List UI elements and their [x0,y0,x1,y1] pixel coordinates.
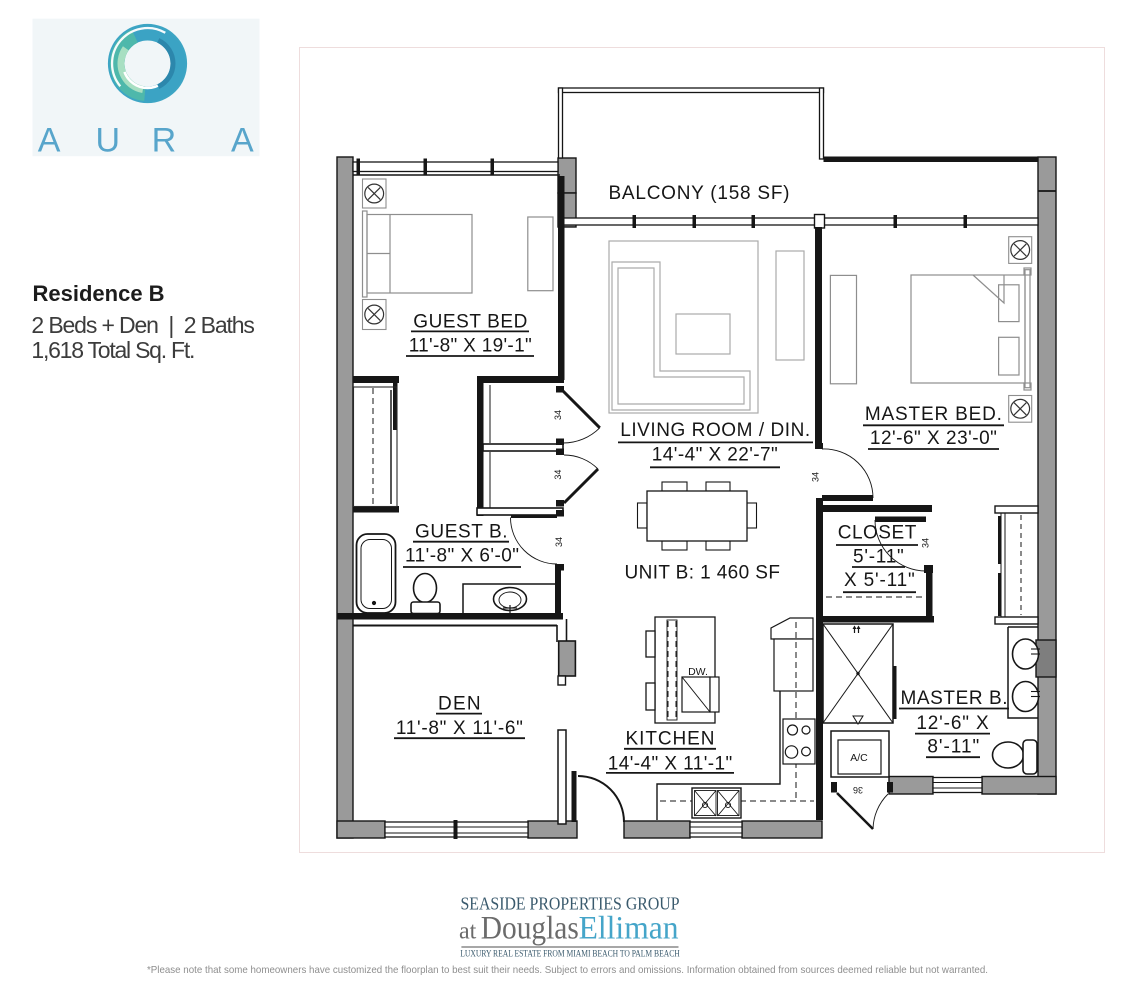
svg-text:BALCONY (158 SF): BALCONY (158 SF) [609,183,790,204]
svg-text:36: 36 [853,785,863,795]
svg-text:Residence B: Residence B [33,281,165,306]
svg-text:14'-4" X 11'-1": 14'-4" X 11'-1" [608,753,733,774]
svg-text:34: 34 [553,470,563,480]
svg-text:34: 34 [554,537,564,547]
svg-text:GUEST B.: GUEST B. [415,522,508,543]
svg-text:34: 34 [921,538,931,548]
svg-text:DW.: DW. [688,666,708,678]
svg-text:X 5'-11": X 5'-11" [844,570,915,591]
svg-text:34: 34 [811,472,821,482]
svg-text:Elliman: Elliman [579,910,679,946]
svg-text:KITCHEN: KITCHEN [626,729,715,750]
svg-text:A: A [38,121,61,159]
svg-text:MASTER BED.: MASTER BED. [865,404,1002,425]
svg-text:2 Beds + Den | 2 Baths: 2 Beds + Den | 2 Baths [31,312,255,338]
svg-text:LUXURY REAL ESTATE FROM MIAMI: LUXURY REAL ESTATE FROM MIAMI BEACH TO P… [460,949,680,960]
svg-text:CLOSET: CLOSET [838,523,917,544]
svg-text:UNIT B: 1 460 SF: UNIT B: 1 460 SF [624,563,780,584]
svg-text:at: at [459,918,477,944]
svg-text:11'-8" X 11'-6": 11'-8" X 11'-6" [396,718,523,739]
svg-text:11'-8" X 6'-0": 11'-8" X 6'-0" [405,546,519,567]
svg-text:A: A [231,121,254,159]
svg-text:MASTER B.: MASTER B. [901,688,1008,709]
svg-text:R: R [152,121,177,159]
svg-text:8'-11": 8'-11" [927,737,979,758]
svg-text:1,618 Total Sq. Ft.: 1,618 Total Sq. Ft. [31,337,195,363]
svg-text:A/C: A/C [850,752,868,764]
svg-text:DEN: DEN [438,694,481,715]
svg-text:U: U [96,121,121,159]
svg-text:11'-8" X 19'-1": 11'-8" X 19'-1" [409,336,532,357]
svg-text:Douglas: Douglas [481,910,579,946]
svg-text:34: 34 [553,410,563,420]
svg-text:14'-4" X 22'-7": 14'-4" X 22'-7" [652,445,778,466]
svg-text:12'-6" X 23'-0": 12'-6" X 23'-0" [870,428,997,449]
svg-text:GUEST BED: GUEST BED [413,312,527,333]
svg-text:*Please note that some homeown: *Please note that some homeowners have c… [147,964,988,976]
svg-text:LIVING ROOM / DIN.: LIVING ROOM / DIN. [620,420,810,441]
svg-text:12'-6" X: 12'-6" X [916,713,989,734]
svg-text:5'-11": 5'-11" [853,546,904,567]
